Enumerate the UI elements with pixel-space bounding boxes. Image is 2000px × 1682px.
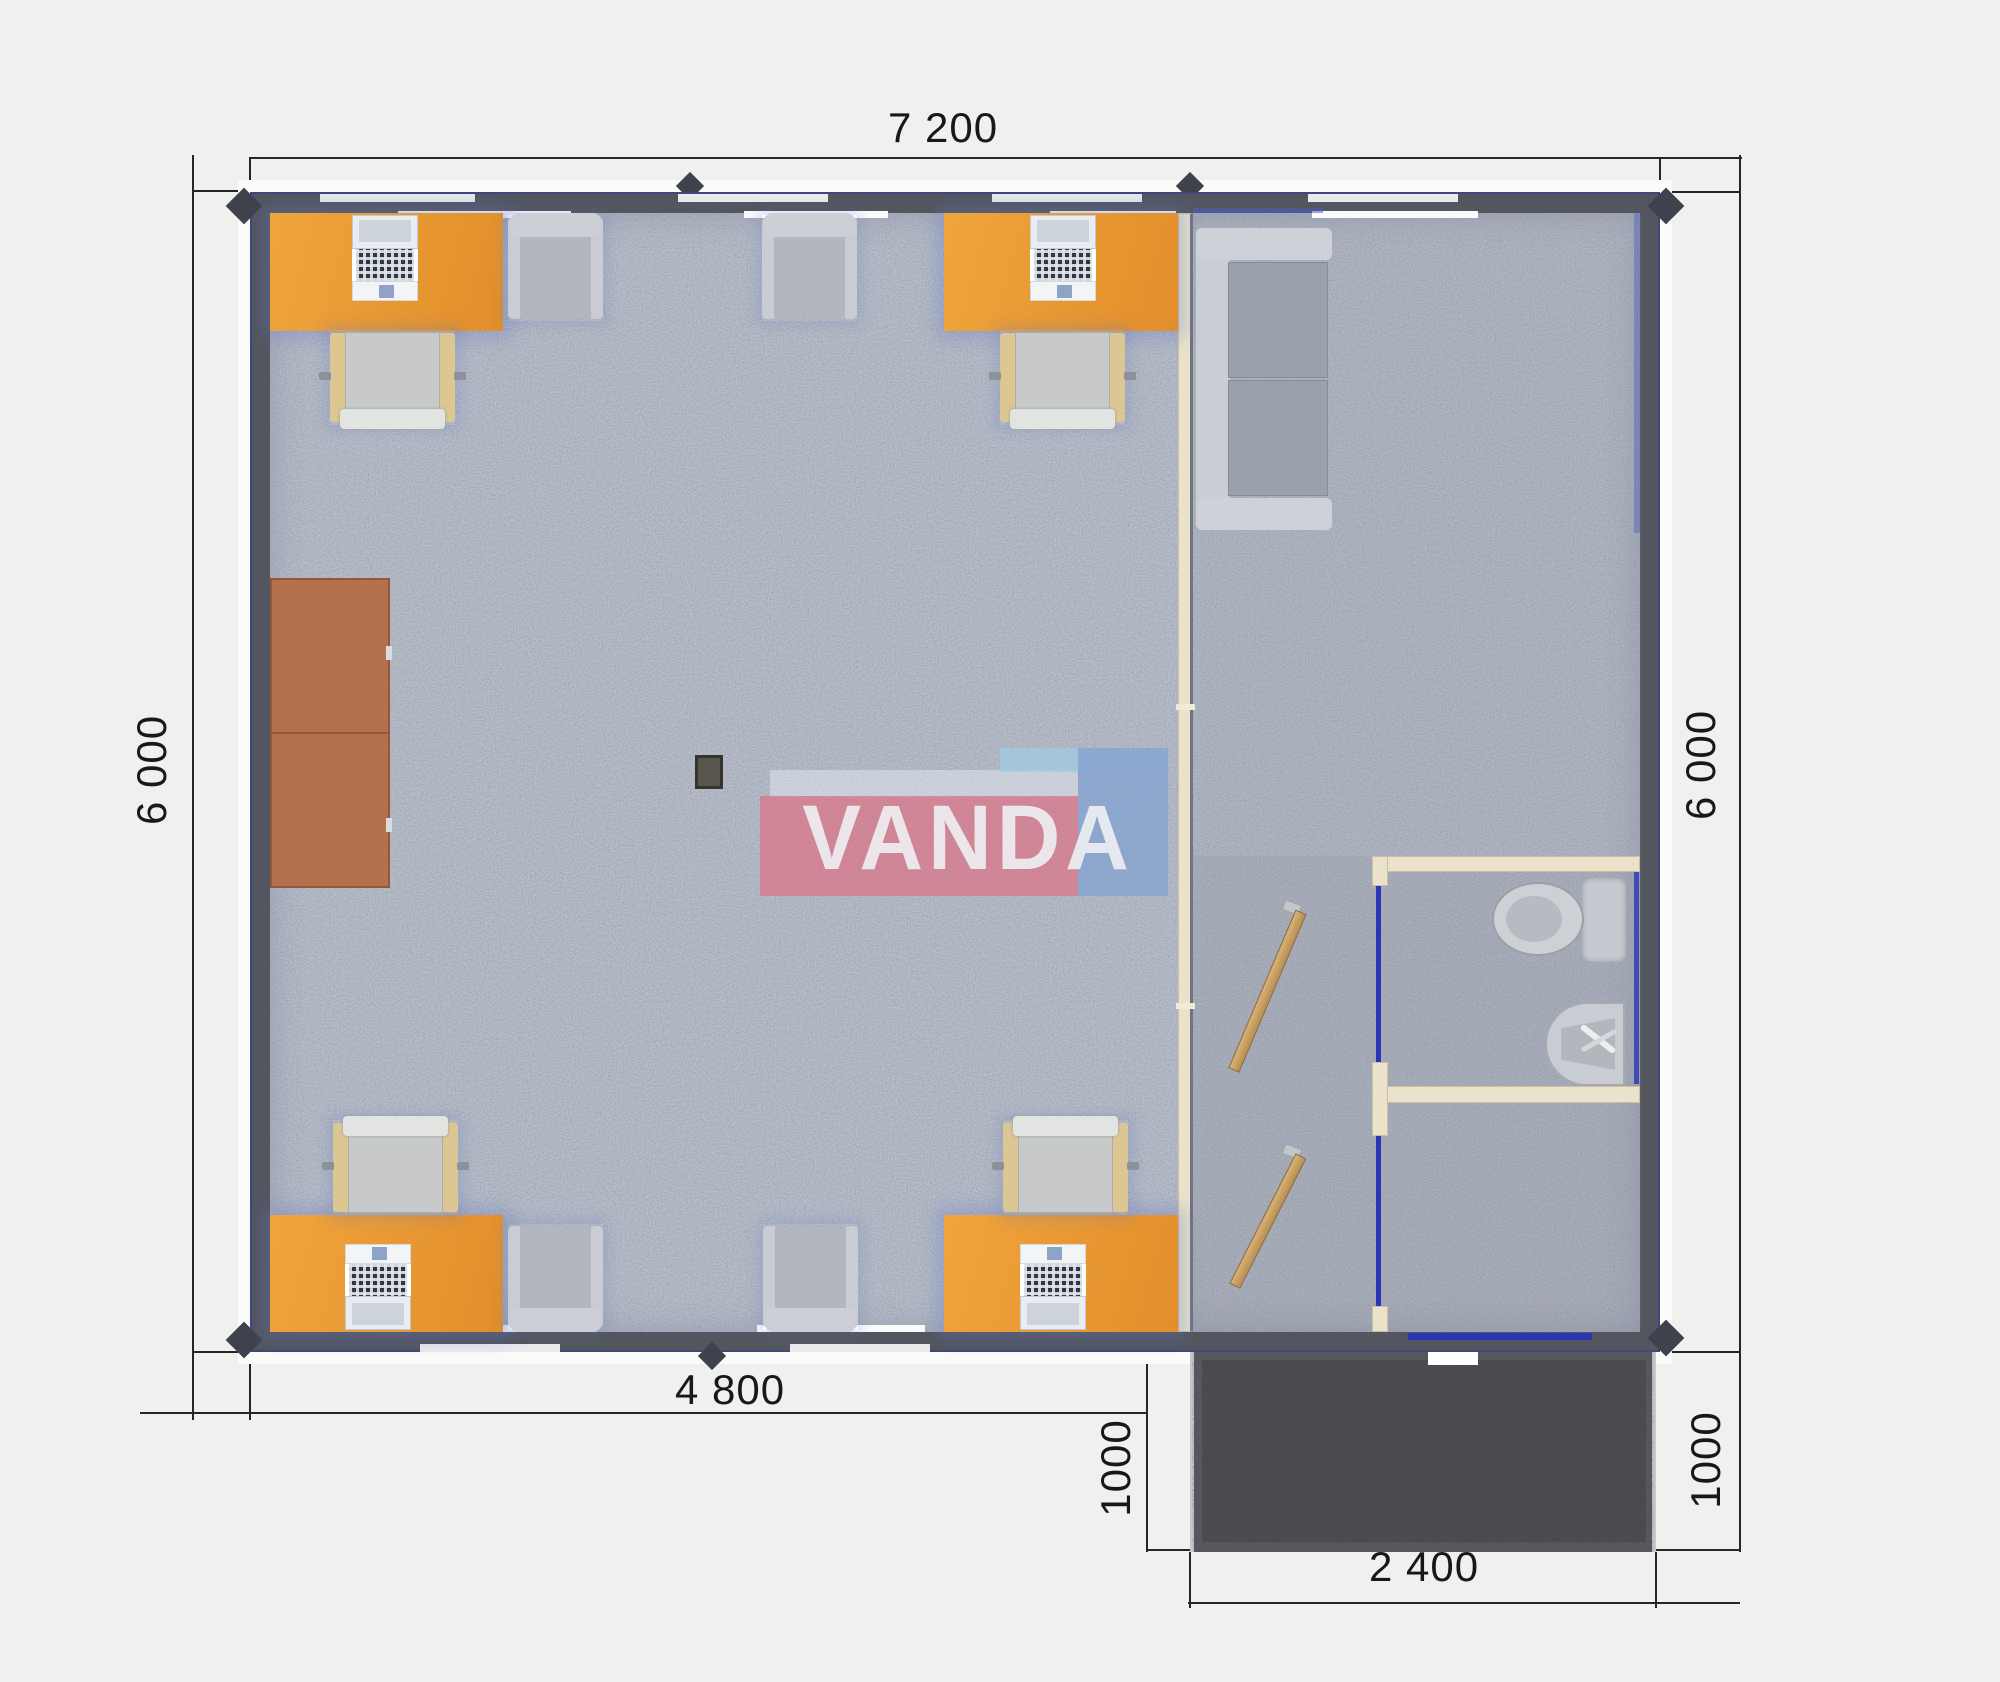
laptop-icon — [1020, 1244, 1086, 1330]
partition-joint — [1176, 1003, 1195, 1009]
sink — [1545, 1002, 1625, 1086]
desk — [944, 213, 1178, 331]
dim-left-height: 6 000 — [128, 715, 176, 825]
frame-accent — [1634, 213, 1640, 533]
dimension-tick — [1189, 1552, 1191, 1608]
doorway-frame — [1376, 1136, 1381, 1306]
window-icon — [420, 1344, 560, 1352]
desk — [944, 1215, 1178, 1332]
dimension-line-bottom-inner — [140, 1412, 1147, 1414]
desk — [270, 1215, 503, 1332]
partition-wall — [1178, 213, 1193, 1332]
floor-plan: VANDA 7 200 6 000 6 000 4 800 1000 1000 … — [0, 0, 2000, 1682]
doorway-frame — [1376, 886, 1381, 1062]
dimension-tick — [1656, 1549, 1740, 1551]
window-sill — [1312, 211, 1478, 218]
armchair — [763, 1224, 858, 1330]
armchair — [762, 215, 857, 321]
dimension-line-porch-width — [1188, 1602, 1740, 1604]
window-icon — [320, 194, 475, 202]
porch-deck — [1202, 1360, 1646, 1542]
dim-porch-depth-left: 1000 — [1092, 1419, 1140, 1516]
floor-box — [695, 755, 723, 789]
armchair — [508, 1224, 603, 1330]
armchair — [508, 215, 603, 321]
dim-porch-width: 2 400 — [1369, 1543, 1479, 1591]
desk-chair — [1000, 330, 1125, 425]
frame-accent — [1193, 208, 1323, 213]
bathroom-wall-left — [1372, 856, 1388, 886]
cabinet-handle-icon — [386, 818, 392, 832]
dimension-line-left — [192, 155, 194, 1420]
dim-top-width: 7 200 — [888, 104, 998, 152]
bathroom-wall-middle — [1372, 1086, 1640, 1103]
entrance-door-line — [1408, 1333, 1592, 1340]
bathroom-wall-left — [1372, 1306, 1388, 1332]
laptop-icon — [345, 1244, 411, 1330]
sofa — [1196, 228, 1332, 530]
window-icon — [992, 194, 1142, 202]
frame-accent — [1634, 872, 1639, 1084]
partition-joint — [1176, 704, 1195, 710]
dimension-line-top — [250, 157, 1742, 159]
entrance-porch — [1190, 1348, 1656, 1552]
entrance-step — [1428, 1352, 1478, 1365]
dimension-tick — [1146, 1549, 1190, 1551]
window-icon — [1308, 194, 1458, 202]
laptop-icon — [352, 215, 418, 301]
dimension-tick — [1660, 1351, 1740, 1353]
dimension-tick — [1655, 1552, 1657, 1608]
dim-porch-depth-right: 1000 — [1682, 1411, 1730, 1508]
laptop-icon — [1030, 215, 1096, 301]
logo-text: VANDA — [780, 786, 1156, 891]
desk-chair — [333, 1120, 458, 1215]
bathroom-wall-top — [1372, 856, 1640, 872]
dimension-line-porch-left — [1146, 1352, 1148, 1552]
window-icon — [678, 194, 828, 202]
vanda-logo-watermark: VANDA — [760, 746, 1168, 898]
desk-chair — [1003, 1120, 1128, 1215]
window-icon — [790, 1344, 930, 1352]
dimension-line-right — [1739, 155, 1741, 1552]
desk-chair — [330, 330, 455, 425]
cabinet-handle-icon — [386, 646, 392, 660]
wardrobe-cabinet — [270, 578, 390, 888]
toilet — [1492, 876, 1626, 964]
dim-right-height: 6 000 — [1677, 710, 1725, 820]
bathroom-wall-left — [1372, 1062, 1388, 1136]
desk — [270, 213, 503, 331]
dim-bottom-inner-width: 4 800 — [675, 1366, 785, 1414]
